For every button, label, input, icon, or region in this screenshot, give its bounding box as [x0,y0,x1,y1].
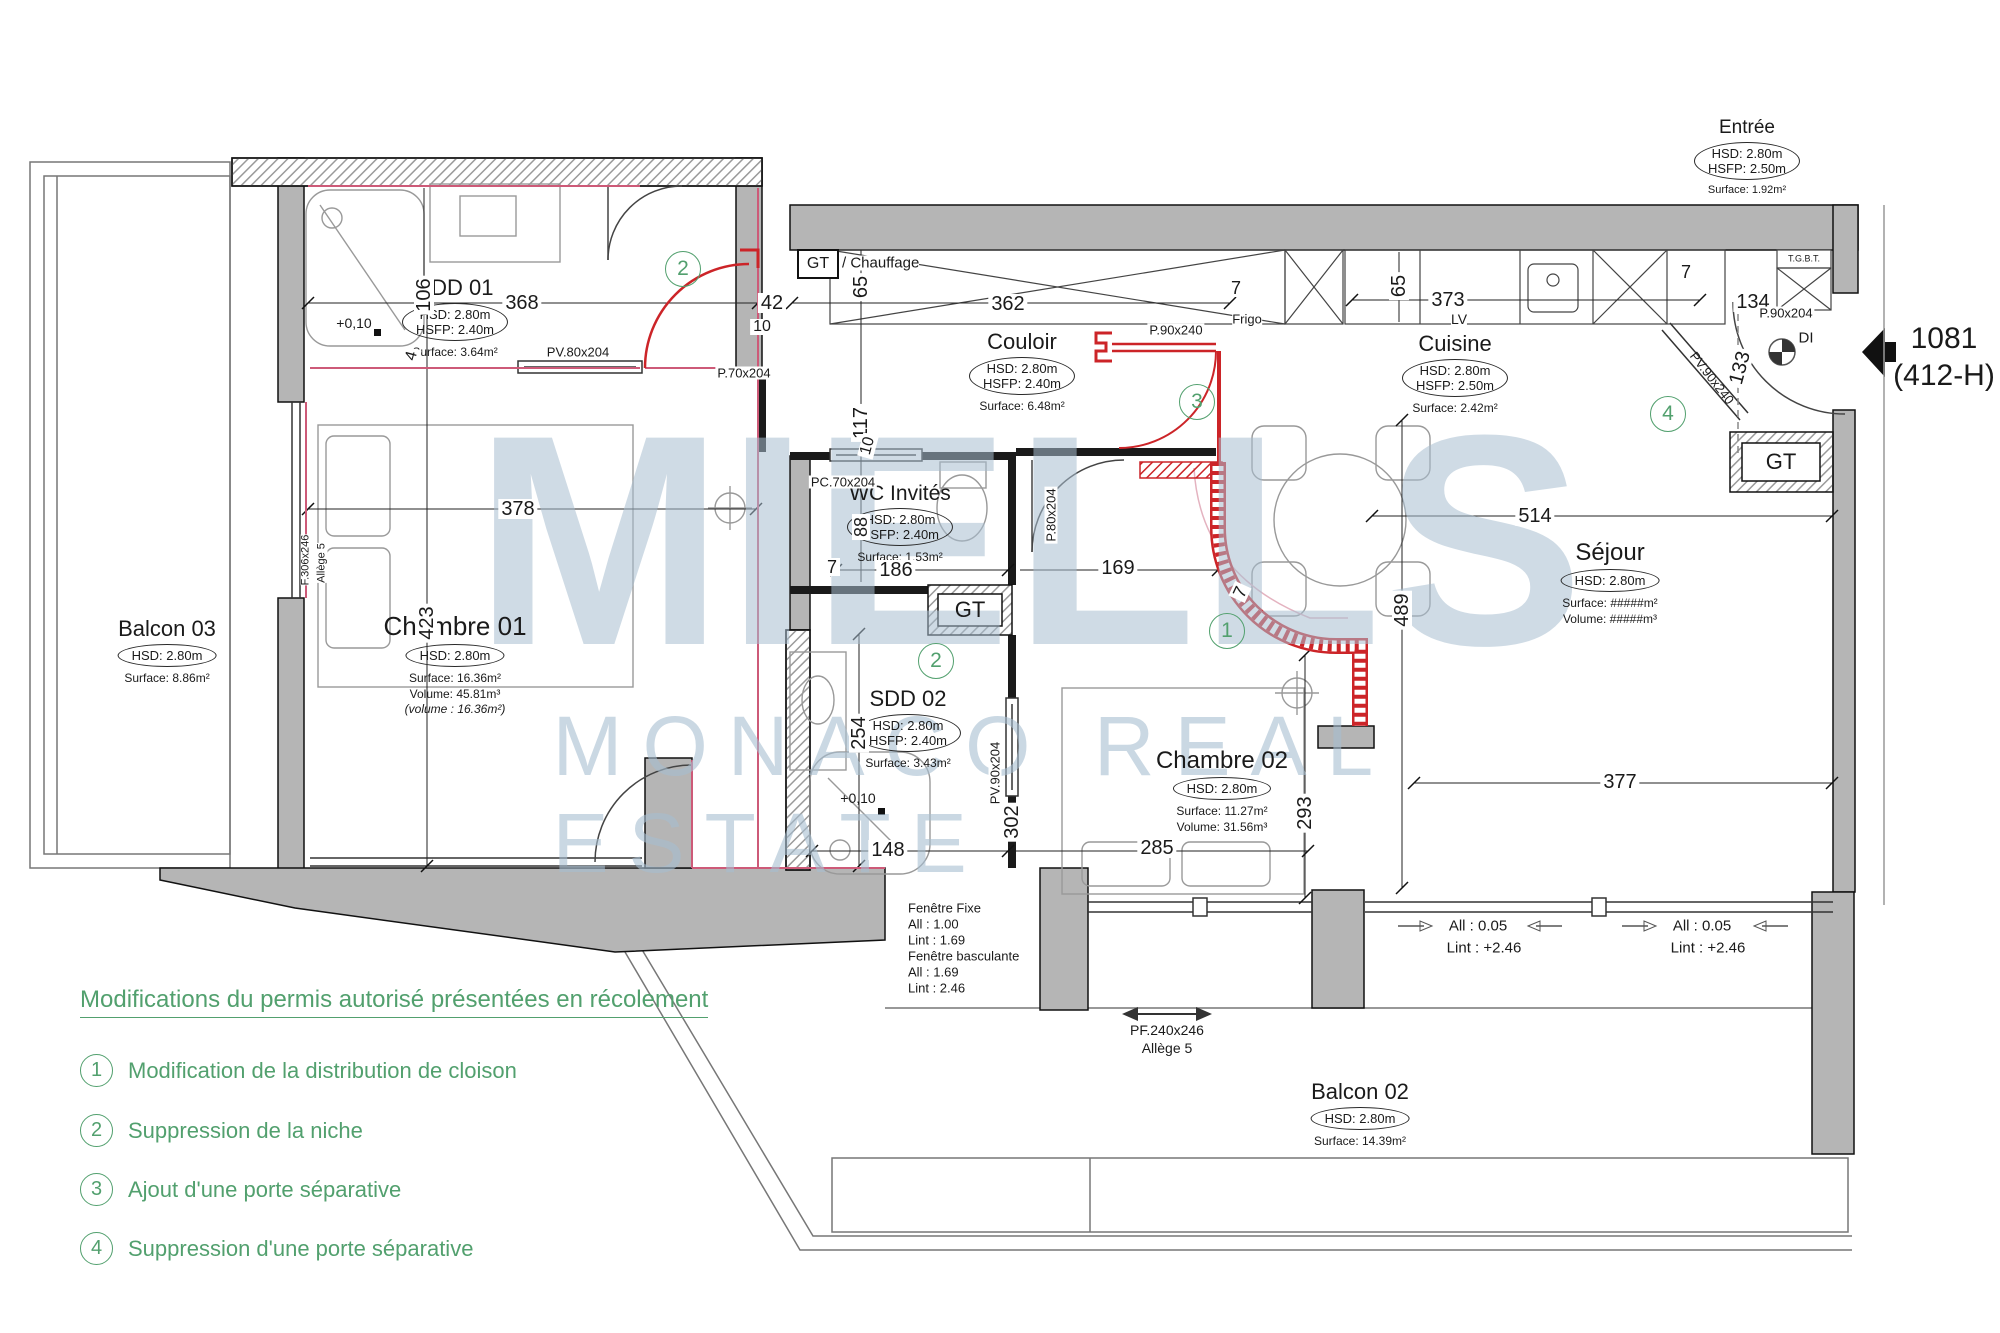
plan-marker-3: 3 [1179,384,1215,420]
dim-7-cuisine: 7 [1678,263,1694,281]
level-label-sdd01: +0,10 [336,316,371,330]
door-label-p90x204: P.90x204 [1757,307,1814,320]
room-name: Balcon 02 [1311,1080,1410,1104]
height-ellipse: HSD: 2.80mHSFP: 2.50m [1402,359,1508,397]
room-name: SDD 02 [855,687,961,711]
height-ellipse: HSD: 2.80m [406,644,505,667]
height-ellipse: HSD: 2.80m [118,644,217,667]
room-name: Entrée [1694,118,1800,139]
gt-wc-label: GT [955,599,986,621]
door-label-p80: P.80x204 [1045,486,1058,543]
room-label-balcon02: Balcon 02 HSD: 2.80m Surface: 14.39m² [1311,1080,1410,1149]
dim-362: 362 [988,294,1027,314]
room-label-balcon03: Balcon 03 HSD: 2.80m Surface: 8.86m² [118,617,217,686]
dim-285: 285 [1137,838,1176,858]
room-surface: Surface: 14.39m² [1311,1134,1410,1149]
room-label-sejour: Séjour HSD: 2.80m Surface: #####m² Volum… [1561,540,1660,627]
watermark-subtitle: MONACO REAL ESTATE [553,698,1518,892]
door-label-pc70: PC.70x204 [809,476,877,489]
window-label-allege: Allège 5 [317,543,328,583]
room-name: Couloir [969,330,1075,354]
reference-arrow-icon [1862,328,1896,377]
pf-allege-label: Allège 5 [1142,1041,1193,1055]
gt-chauffage-box-label: GT [807,256,829,272]
room-volume: Volume: #####m³ [1561,612,1660,627]
height-ellipse: HSD: 2.80mHSFP: 2.40m [969,357,1075,395]
room-surface: Surface: #####m² [1561,596,1660,611]
plan-marker-4: 4 [1650,396,1686,432]
height-ellipse: HSD: 2.80mHSFP: 2.50m [1694,142,1800,180]
dim-148: 148 [868,840,907,860]
room-surface: Surface: 8.86m² [118,671,217,686]
window-note-line5: All : 1.69 [908,966,959,979]
door-label-p70: P.70x204 [715,367,772,380]
reference-number: 1081 [1911,324,1978,354]
room-name: Chambre 02 [1156,748,1288,774]
room-label-chambre01: Chambre 01 HSD: 2.80m Surface: 16.36m² V… [383,612,526,716]
dim-88: 88 [852,514,870,540]
dim-254: 254 [849,713,869,752]
dim-7-couloir: 7 [1228,279,1244,297]
room-volume: Volume: 31.56m³ [1156,820,1288,835]
room-surface: Surface: 1.92m² [1694,184,1800,198]
watermark-brand: MIELLS [474,367,1586,713]
door-label-pv80: PV.80x204 [545,346,611,359]
legend-item-1: 1 Modification de la distribution de clo… [80,1054,517,1087]
room-label-chambre02: Chambre 02 HSD: 2.80m Surface: 11.27m² V… [1156,748,1288,835]
dim-514: 514 [1515,506,1554,526]
door-label-p90x240: P.90x240 [1147,324,1204,337]
room-surface: Surface: 11.27m² [1156,804,1288,819]
dim-489: 489 [1392,590,1412,629]
balcony-03-outline [30,162,230,868]
legend-marker-3: 3 [80,1173,113,1206]
window-note-line1: Fenêtre Fixe [908,902,981,915]
plan-marker-2a: 2 [665,251,701,287]
dim-186: 186 [876,560,915,580]
lint-label-1: Lint : +2.46 [1447,941,1522,956]
balcony-02-outline [625,948,1852,1250]
dim-7-wc: 7 [824,558,840,576]
dim-377: 377 [1600,772,1639,792]
window-label-f306: F.306x246 [301,535,312,586]
dim-65-cuisine: 65 [1389,272,1409,300]
door-label-pv90x204: PV.90x204 [989,740,1002,806]
window-note-line4: Fenêtre basculante [908,950,1019,963]
room-note: (volume : 16.36m²) [383,702,526,716]
room-surface: Surface: 6.48m² [969,399,1075,414]
room-label-couloir: Couloir HSD: 2.80mHSFP: 2.40m Surface: 6… [969,330,1075,414]
floor-plan-page: MIELLS MONACO REAL ESTATE Entrée HSD: 2.… [0,0,2000,1333]
dim-65-couloir: 65 [851,273,871,301]
legend-marker-4: 4 [80,1232,113,1265]
dim-373: 373 [1428,290,1467,310]
plan-marker-1: 1 [1209,613,1245,649]
room-volume: Volume: 45.81m³ [383,687,526,702]
cabinet-band [798,250,1831,324]
window-note-line3: Lint : 1.69 [908,934,965,947]
room-name: Balcon 03 [118,617,217,641]
room-name: Cuisine [1402,332,1508,356]
height-ellipse: HSD: 2.80m [1311,1107,1410,1130]
all-label-1: All : 0.05 [1449,919,1507,934]
dim-293: 293 [1295,793,1315,832]
reference-code: (412-H) [1893,361,1995,391]
legend-marker-1: 1 [80,1054,113,1087]
dim-302: 302 [1002,802,1022,841]
window-note-line6: Lint : 2.46 [908,982,965,995]
gt-sejour-label: GT [1766,451,1797,473]
dim-368: 368 [502,293,541,313]
room-name: Chambre 01 [383,612,526,641]
height-ellipse: HSD: 2.80mHSFP: 2.40m [855,714,961,752]
tgbt-label: T.G.B.T. [1788,255,1820,264]
legend-item-2: 2 Suppression de la niche [80,1114,363,1147]
room-label-sdd02: SDD 02 HSD: 2.80mHSFP: 2.40m Surface: 3.… [855,687,961,771]
room-label-entree: Entrée HSD: 2.80mHSFP: 2.50m Surface: 1.… [1694,118,1800,198]
level-label-sdd02: +0,10 [840,791,875,805]
legend-title: Modifications du permis autorisé présent… [80,986,708,1018]
dim-10: 10 [750,319,774,335]
all-label-2: All : 0.05 [1673,919,1731,934]
di-label: DI [1799,331,1814,346]
dim-169: 169 [1098,558,1137,578]
plan-marker-2b: 2 [918,643,954,679]
legend-item-3: 3 Ajout d'une porte séparative [80,1173,401,1206]
dim-106: 106 [414,275,434,314]
dim-42: 42 [758,293,786,313]
room-label-cuisine: Cuisine HSD: 2.80mHSFP: 2.50m Surface: 2… [1402,332,1508,416]
lint-label-2: Lint : +2.46 [1671,941,1746,956]
chauffage-label: / Chauffage [842,256,919,271]
room-name: Séjour [1561,540,1660,566]
height-ellipse: HSD: 2.80m [1561,569,1660,592]
dim-378: 378 [498,499,537,519]
dim-423: 423 [417,603,437,642]
room-surface: Surface: 3.43m² [855,756,961,771]
pf-window-label: PF.240x246 [1130,1023,1204,1037]
legend-marker-2: 2 [80,1114,113,1147]
frigo-label: Frigo [1232,313,1262,326]
legend-item-4: 4 Suppression d'une porte séparative [80,1232,473,1265]
height-ellipse: HSD: 2.80m [1173,777,1272,800]
window-note-line2: All : 1.00 [908,918,959,931]
room-surface: Surface: 16.36m² [383,671,526,686]
room-surface: Surface: 2.42m² [1402,401,1508,416]
lv-label: LV [1451,312,1467,326]
